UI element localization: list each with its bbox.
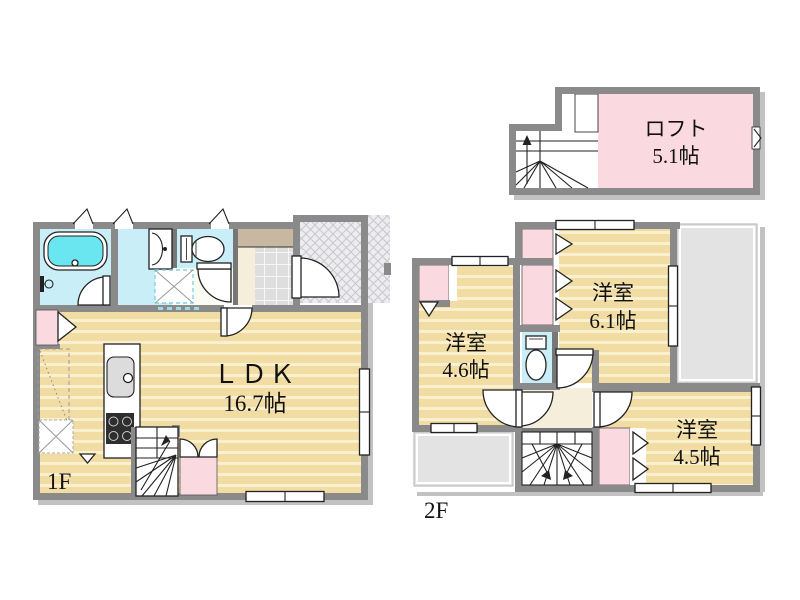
wall-loft-top	[555, 87, 760, 94]
entry-step	[238, 229, 295, 247]
wall-hall-stairs	[522, 428, 592, 432]
closet-2f-d	[599, 428, 630, 485]
wall-bath-wash	[111, 222, 118, 305]
wall-loft-bottom	[509, 188, 760, 195]
loft: ロフト 5.1帖	[509, 87, 765, 200]
wall-closet-c-stub	[436, 300, 450, 307]
floor1-label: 1F	[47, 469, 71, 494]
loft-name-label: ロフト	[645, 117, 708, 141]
washer-pan-icon	[155, 270, 193, 303]
door-leaf	[197, 263, 231, 269]
casement-icon	[209, 209, 229, 224]
wall-1f-right	[361, 222, 368, 500]
floor-plan-page: ＬＤＫ 16.7帖 1F ロフト 5.1帖	[0, 0, 800, 600]
room-4-5-name-label: 洋室	[676, 418, 718, 442]
window-4-5-bottom	[635, 484, 711, 493]
porch-wall-tick	[384, 263, 391, 275]
wall-toilet-top	[515, 325, 560, 332]
washbasin-icon	[149, 229, 172, 269]
closet-2f-b	[522, 265, 553, 325]
wall-toilet-bottom	[515, 383, 560, 390]
porch-slab-ext	[368, 215, 390, 303]
wall-wash-toilet	[172, 229, 177, 268]
casement-icon	[113, 209, 133, 224]
room-4-6-name-label: 洋室	[445, 331, 487, 355]
wall-loft-stairs-top	[509, 124, 562, 131]
floor2-label: 2F	[424, 498, 448, 523]
toilet-icon-2f	[526, 336, 546, 380]
roof-area-bottom-left	[414, 432, 513, 486]
stove-icon	[106, 413, 134, 444]
wall-4-6-left	[412, 258, 419, 432]
wall-1f-top	[33, 222, 300, 229]
bathtub-icon	[44, 232, 107, 270]
shadow-loft-bottom	[514, 195, 765, 200]
closet-front-c	[449, 265, 457, 301]
stairs-1f	[131, 425, 180, 496]
closet-2f-c	[419, 265, 449, 301]
window-6-1-right	[669, 266, 678, 346]
entry-tile-floor	[255, 247, 293, 305]
window-6-1-top	[556, 221, 634, 230]
loft-window-marker	[752, 127, 761, 149]
room-6-1-name-label: 洋室	[592, 281, 634, 305]
wall-stairs-left	[515, 425, 522, 492]
window-4-5-right	[752, 387, 761, 445]
room-6-1-size-label: 6.1帖	[589, 309, 636, 333]
wall-1f-mid	[33, 305, 368, 312]
shadow-loft-right	[760, 92, 765, 198]
ldk-name-label: ＬＤＫ	[213, 360, 297, 389]
entry-hall-floor	[238, 247, 255, 305]
window-1f-right	[360, 369, 370, 455]
roof-area-top-right	[677, 224, 757, 383]
wall-4-5-top	[592, 383, 760, 392]
faucet-icon	[124, 374, 133, 383]
floor-hatch-square	[39, 420, 73, 453]
floor-2f: 洋室 6.1帖 洋室 4.6帖 洋室 4.5帖 2F	[412, 221, 765, 524]
door-leaf	[292, 256, 301, 298]
room-4-5-size-label: 4.5帖	[673, 445, 720, 469]
room-4-6-size-label: 4.6帖	[442, 358, 489, 382]
floor-plan-drawing: ＬＤＫ 16.7帖 1F ロフト 5.1帖	[0, 0, 800, 600]
window-1f-bottom	[246, 492, 324, 502]
wall-stairs-bottom	[515, 485, 599, 492]
door-leaf	[103, 276, 110, 305]
door-leaf	[221, 308, 227, 336]
wall-toilet-hall	[233, 229, 238, 305]
toilet-icon-1f	[181, 236, 224, 262]
door-leaf	[556, 349, 593, 355]
door-leaf	[594, 392, 600, 427]
wall-loft-stairs-left	[509, 124, 516, 195]
loft-room-floor	[598, 94, 753, 188]
window-4-6-bottom	[431, 424, 477, 433]
wall-loft-left-upper	[555, 87, 562, 127]
wall-1f-left	[33, 222, 40, 500]
shadow-2f-right	[760, 227, 765, 492]
closet-pink-1f	[36, 310, 58, 345]
loft-size-label: 5.1帖	[652, 144, 699, 168]
door-leaf	[516, 390, 522, 427]
porch-top-wall	[293, 215, 368, 222]
window-4-6-top	[452, 257, 508, 266]
casement-icon	[73, 209, 93, 224]
ldk-size-label: 16.7帖	[223, 391, 286, 416]
wall-closet-ab	[522, 258, 553, 265]
floor-1f: ＬＤＫ 16.7帖 1F	[33, 209, 391, 505]
